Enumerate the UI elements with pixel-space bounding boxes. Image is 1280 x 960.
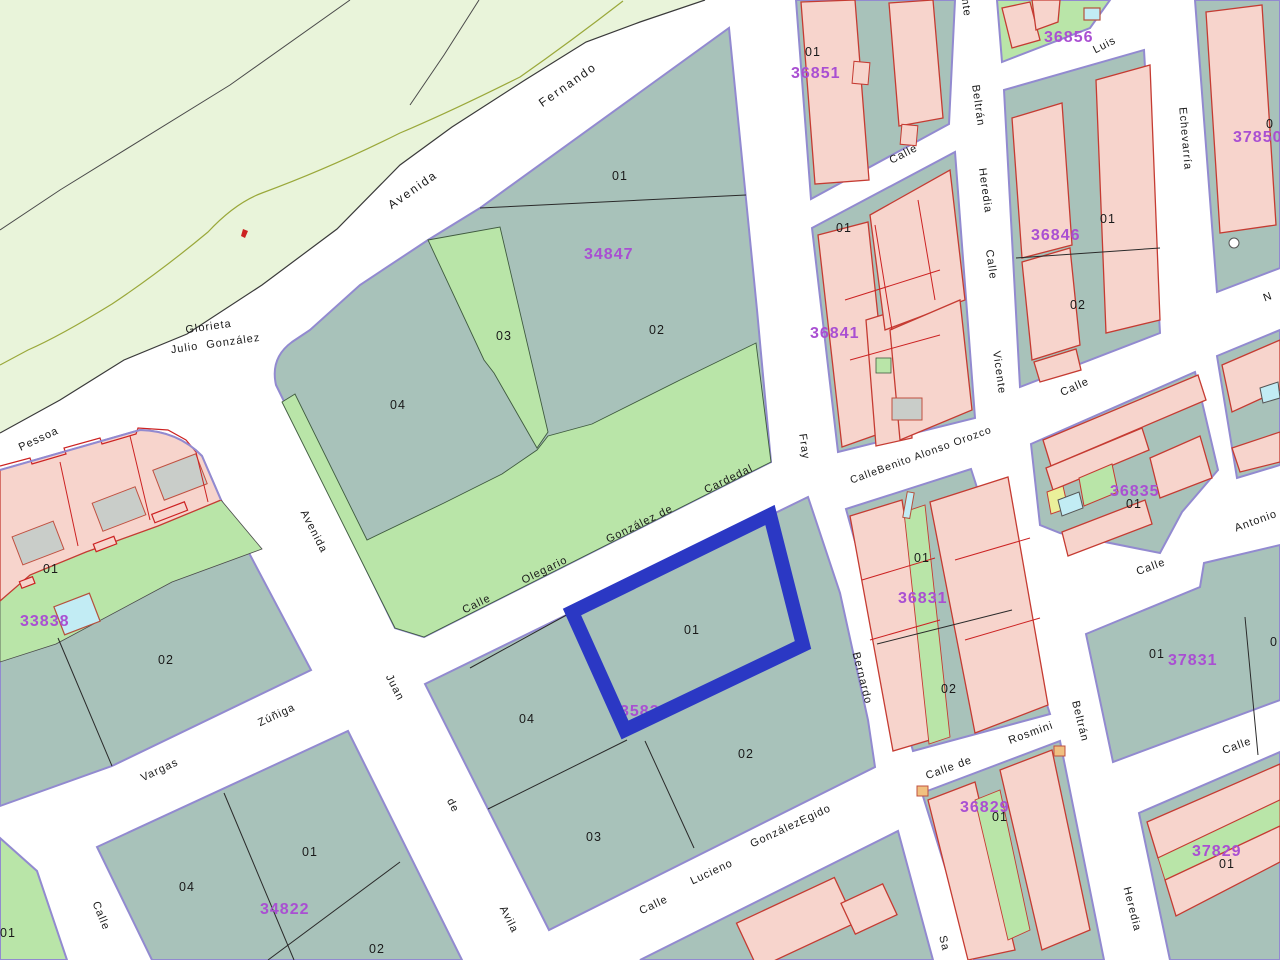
svg-text:01: 01 xyxy=(43,562,59,576)
svg-text:02: 02 xyxy=(941,682,957,696)
svg-text:01: 01 xyxy=(1219,857,1235,871)
svg-text:03: 03 xyxy=(496,329,512,343)
svg-text:37850: 37850 xyxy=(1233,129,1280,146)
svg-text:01: 01 xyxy=(805,45,821,59)
svg-text:01: 01 xyxy=(1126,497,1142,511)
svg-text:01: 01 xyxy=(1149,647,1165,661)
svg-text:01: 01 xyxy=(0,926,16,940)
svg-text:01: 01 xyxy=(992,810,1008,824)
svg-text:36846: 36846 xyxy=(1031,227,1081,244)
svg-text:37831: 37831 xyxy=(1168,652,1218,669)
svg-text:33838: 33838 xyxy=(20,613,70,630)
svg-text:36841: 36841 xyxy=(810,325,860,342)
svg-text:01: 01 xyxy=(684,623,700,637)
svg-text:01: 01 xyxy=(914,551,930,565)
svg-text:01: 01 xyxy=(836,221,852,235)
svg-text:34847: 34847 xyxy=(584,246,634,263)
svg-text:03: 03 xyxy=(586,830,602,844)
svg-text:02: 02 xyxy=(158,653,174,667)
svg-text:02: 02 xyxy=(369,942,385,956)
svg-text:02: 02 xyxy=(649,323,665,337)
svg-text:36851: 36851 xyxy=(791,65,841,82)
svg-text:01: 01 xyxy=(612,169,628,183)
svg-text:02: 02 xyxy=(1070,298,1086,312)
svg-text:04: 04 xyxy=(519,712,535,726)
svg-text:04: 04 xyxy=(390,398,406,412)
svg-text:36856: 36856 xyxy=(1044,29,1094,46)
svg-text:02: 02 xyxy=(738,747,754,761)
svg-text:0: 0 xyxy=(1270,635,1278,649)
svg-text:34822: 34822 xyxy=(260,901,310,918)
svg-text:01: 01 xyxy=(1100,212,1116,226)
svg-text:36831: 36831 xyxy=(898,590,948,607)
svg-text:01: 01 xyxy=(302,845,318,859)
svg-text:04: 04 xyxy=(179,880,195,894)
